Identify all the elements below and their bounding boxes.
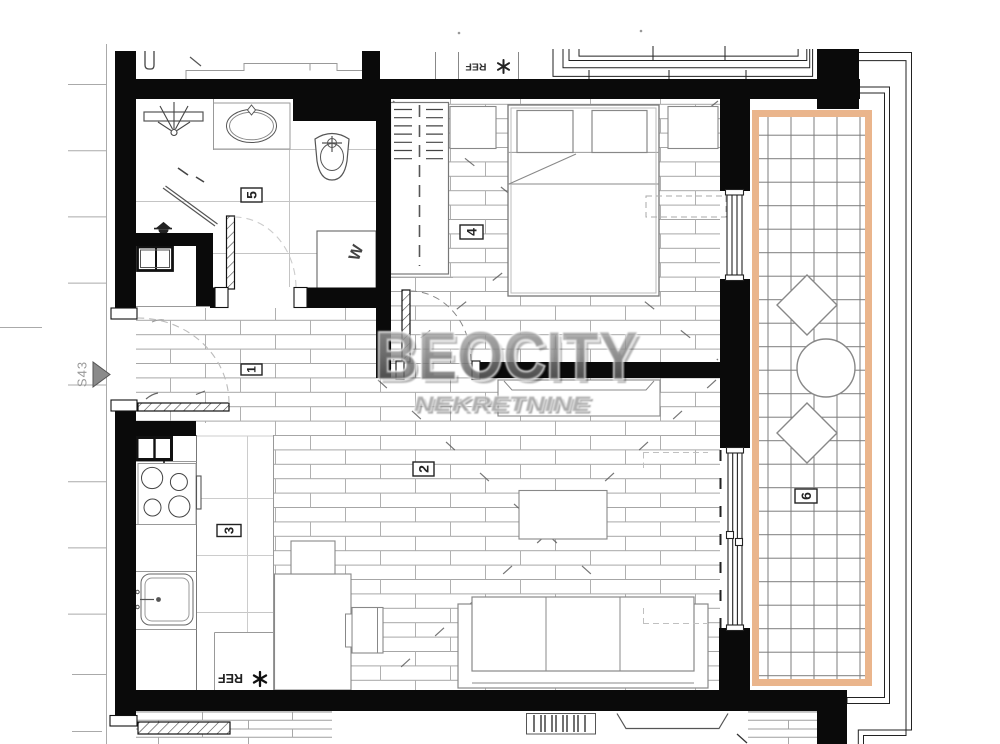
svg-text:1: 1 — [245, 366, 259, 373]
svg-text:NEKRETNINE: NEKRETNINE — [414, 393, 591, 416]
svg-text:REF: REF — [465, 61, 487, 73]
svg-text:5: 5 — [244, 191, 260, 199]
svg-text:BEOCITY: BEOCITY — [375, 318, 638, 394]
svg-text:4: 4 — [464, 228, 480, 236]
svg-text:S43: S43 — [75, 361, 90, 387]
svg-text:2: 2 — [416, 465, 432, 473]
svg-text:REF: REF — [218, 671, 243, 685]
svg-text:6: 6 — [798, 492, 814, 500]
svg-text:3: 3 — [222, 527, 237, 534]
